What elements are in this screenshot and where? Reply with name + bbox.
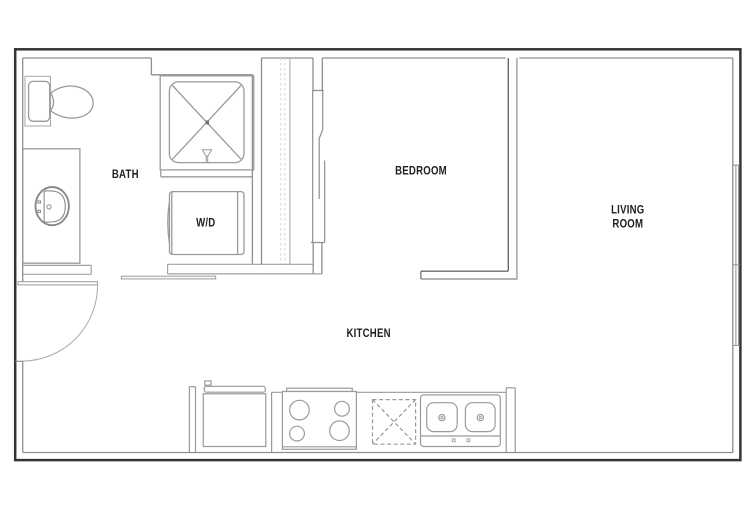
svg-text:ROOM: ROOM [612, 218, 643, 231]
svg-text:W/D: W/D [196, 217, 215, 230]
svg-text:BATH: BATH [112, 168, 139, 181]
svg-text:LIVING: LIVING [611, 204, 644, 217]
svg-text:BEDROOM: BEDROOM [395, 165, 447, 178]
svg-text:KITCHEN: KITCHEN [346, 327, 390, 340]
